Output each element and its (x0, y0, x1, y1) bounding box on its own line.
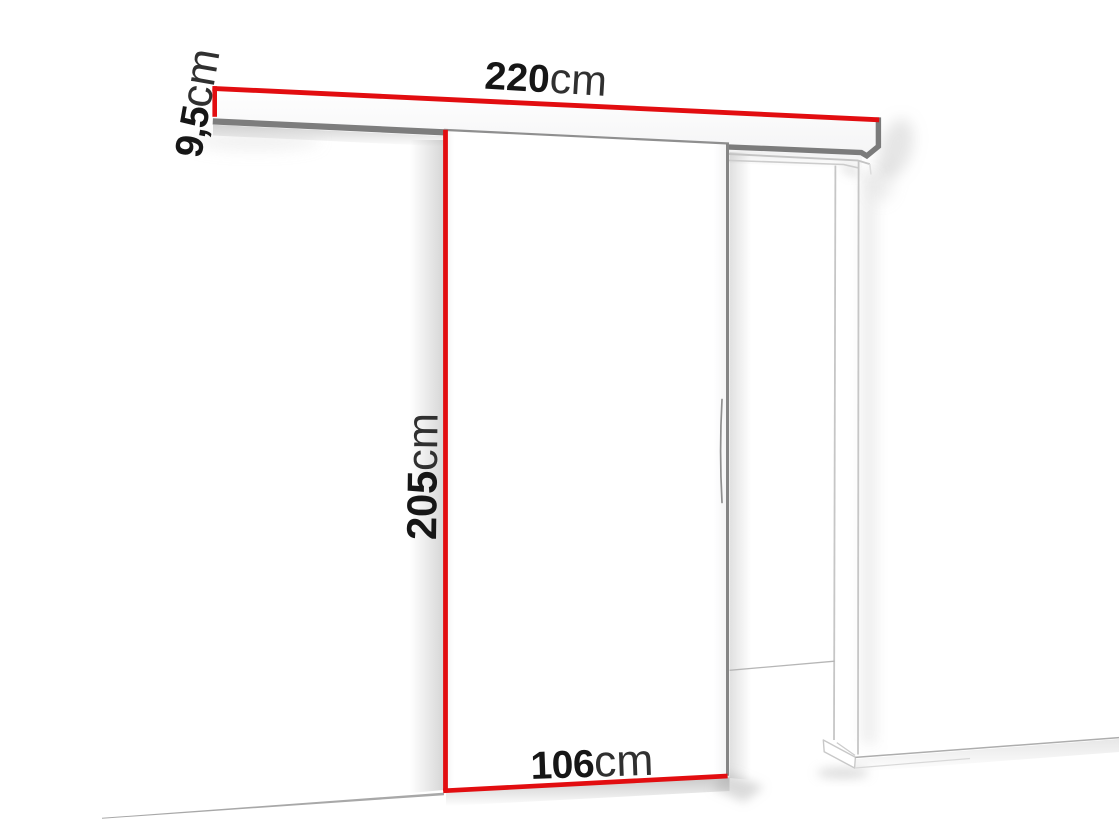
svg-text:220cm: 220cm (483, 51, 608, 106)
svg-text:205cm: 205cm (398, 413, 448, 541)
svg-text:106cm: 106cm (530, 736, 655, 789)
